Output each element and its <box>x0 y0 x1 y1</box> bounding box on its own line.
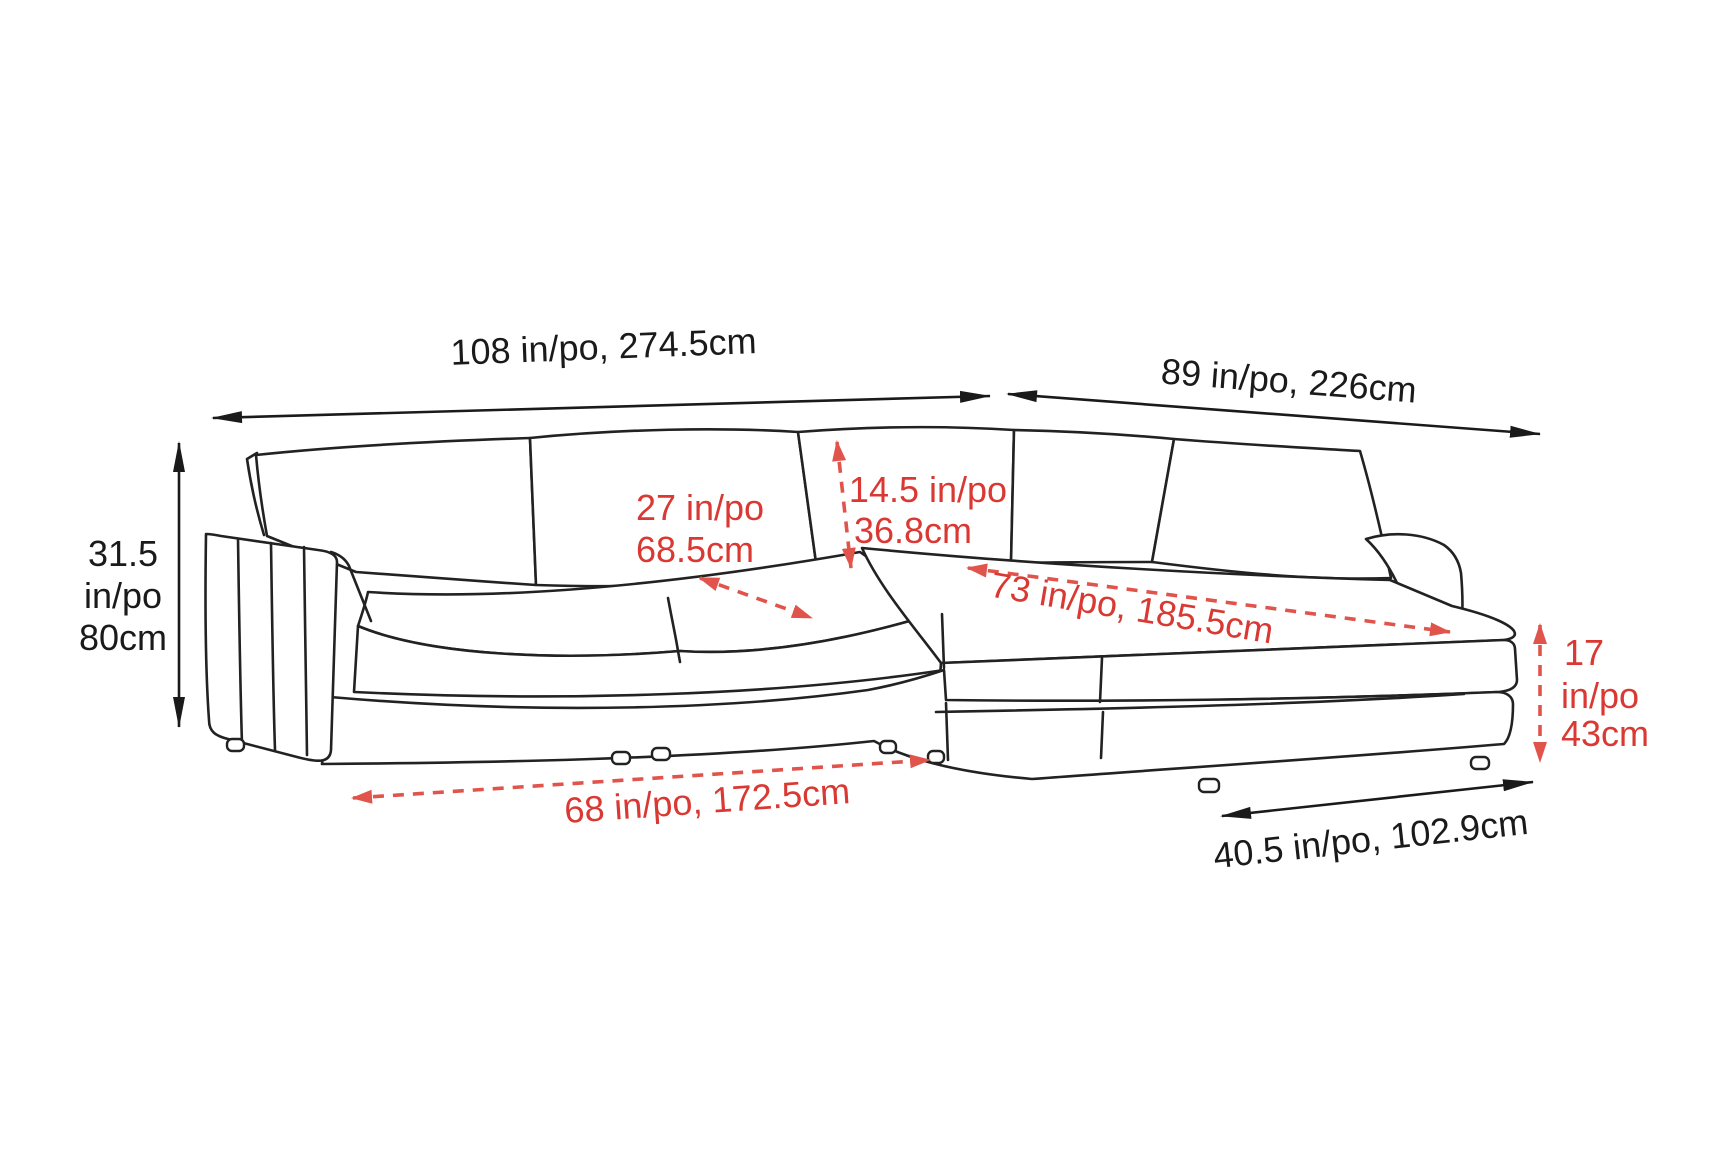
overall-height-label: 31.5 in/po 80cm <box>79 533 167 658</box>
sofa-foot <box>652 748 670 760</box>
sofa-foot <box>227 739 244 751</box>
chaise-side-width-arrow <box>1008 394 1540 434</box>
chaise-side-width-label: 89 in/po, 226cm <box>1160 350 1419 410</box>
seat-height-label: 17 in/po 43cm <box>1561 632 1649 754</box>
seat-height-line2: in/po <box>1561 675 1639 716</box>
sofa-foot <box>880 741 896 753</box>
dimension-diagram-page: 108 in/po, 274.5cm 89 in/po, 226cm 31.5 … <box>0 0 1726 1150</box>
back-cushion-5 <box>1152 439 1391 579</box>
sofa-foot <box>928 751 944 763</box>
back-cushion-height-line1: 14.5 in/po <box>849 469 1007 510</box>
seat-depth-label: 27 in/po 68.5cm <box>636 487 764 570</box>
base-width-label: 68 in/po, 172.5cm <box>563 770 851 831</box>
overall-height-line1: 31.5 <box>88 533 158 574</box>
sofa-dimension-diagram: 108 in/po, 274.5cm 89 in/po, 226cm 31.5 … <box>0 0 1726 1150</box>
back-cushion-4 <box>1011 430 1174 563</box>
overall-height-line2: in/po <box>84 575 162 616</box>
seat-height-line1: 17 <box>1564 632 1604 673</box>
sofa-width-label: 108 in/po, 274.5cm <box>450 320 758 373</box>
sofa-foot <box>612 752 630 764</box>
back-cushion-height-line2: 36.8cm <box>854 510 972 551</box>
seat-depth-line2: 68.5cm <box>636 529 754 570</box>
sofa-foot <box>1471 757 1489 769</box>
seat-height-line3: 43cm <box>1561 713 1649 754</box>
sofa-width-arrow <box>213 396 990 418</box>
seat-depth-line1: 27 in/po <box>636 487 764 528</box>
sofa-foot <box>1199 779 1219 792</box>
overall-height-line3: 80cm <box>79 617 167 658</box>
